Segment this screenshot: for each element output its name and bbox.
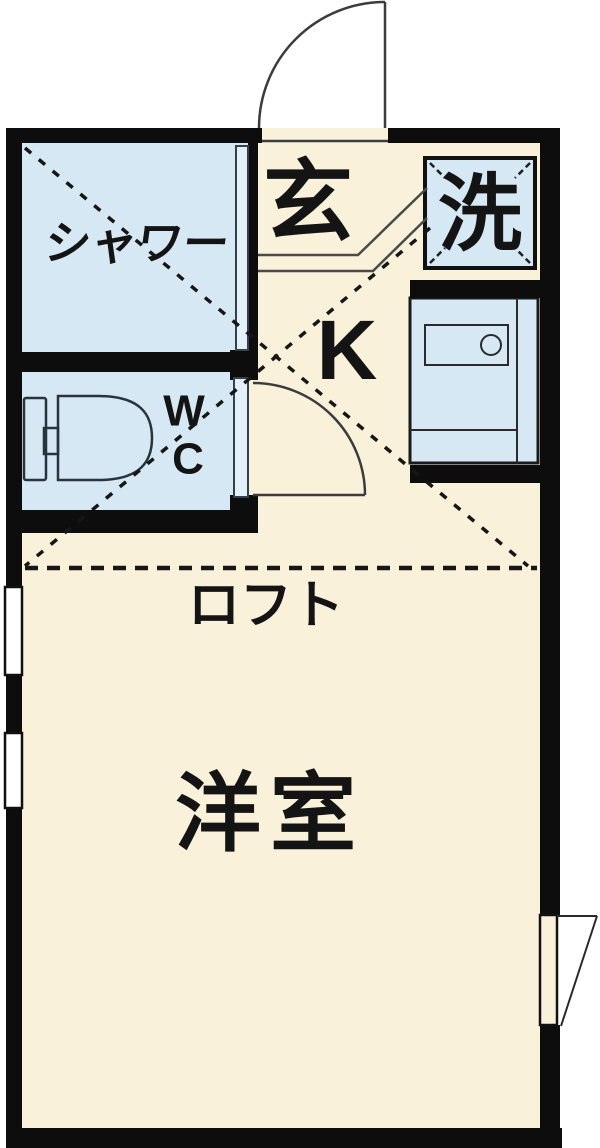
toilet-label-w: W — [163, 387, 205, 436]
wall-left-lower — [6, 808, 22, 1148]
shower-label-wrap: シャワー — [41, 217, 232, 269]
wall-top-right — [388, 128, 560, 143]
toilet-door-panel — [234, 378, 248, 497]
loft-label: ロフト — [188, 577, 344, 635]
right-window-opening — [540, 915, 557, 1025]
wall-top-left — [6, 128, 262, 143]
wall-entrance-shower — [248, 143, 258, 352]
kitchen-label: K — [317, 303, 378, 397]
laundry-label: 洗 — [438, 167, 522, 261]
shower-label: シャワー — [41, 217, 232, 269]
left-window-upper — [5, 587, 22, 675]
wall-kitchen-top — [410, 280, 560, 298]
wall-left-middle — [6, 675, 22, 733]
shower-door-panel — [236, 146, 248, 350]
floor-plan-canvas: シャワー 玄 洗 K W C ロフト 洋室 — [0, 0, 600, 1148]
toilet-label-c: C — [172, 435, 204, 484]
wall-shower-toilet-divider — [6, 352, 258, 372]
left-window-lower — [5, 733, 22, 808]
wall-kitchen-bottom — [410, 465, 560, 483]
wall-toilet-bottom — [6, 510, 258, 533]
wall-bottom — [6, 1128, 562, 1148]
kitchen-counter — [410, 298, 538, 463]
western-room-label: 洋室 — [175, 766, 365, 862]
floor-plan: シャワー 玄 洗 K W C ロフト 洋室 — [0, 0, 600, 1148]
wall-stub-upper — [230, 350, 258, 380]
entrance-label: 玄 — [263, 153, 353, 253]
wall-right-upper — [540, 128, 560, 915]
toilet-room-floor — [22, 372, 248, 510]
wall-stub-lower — [230, 495, 258, 533]
